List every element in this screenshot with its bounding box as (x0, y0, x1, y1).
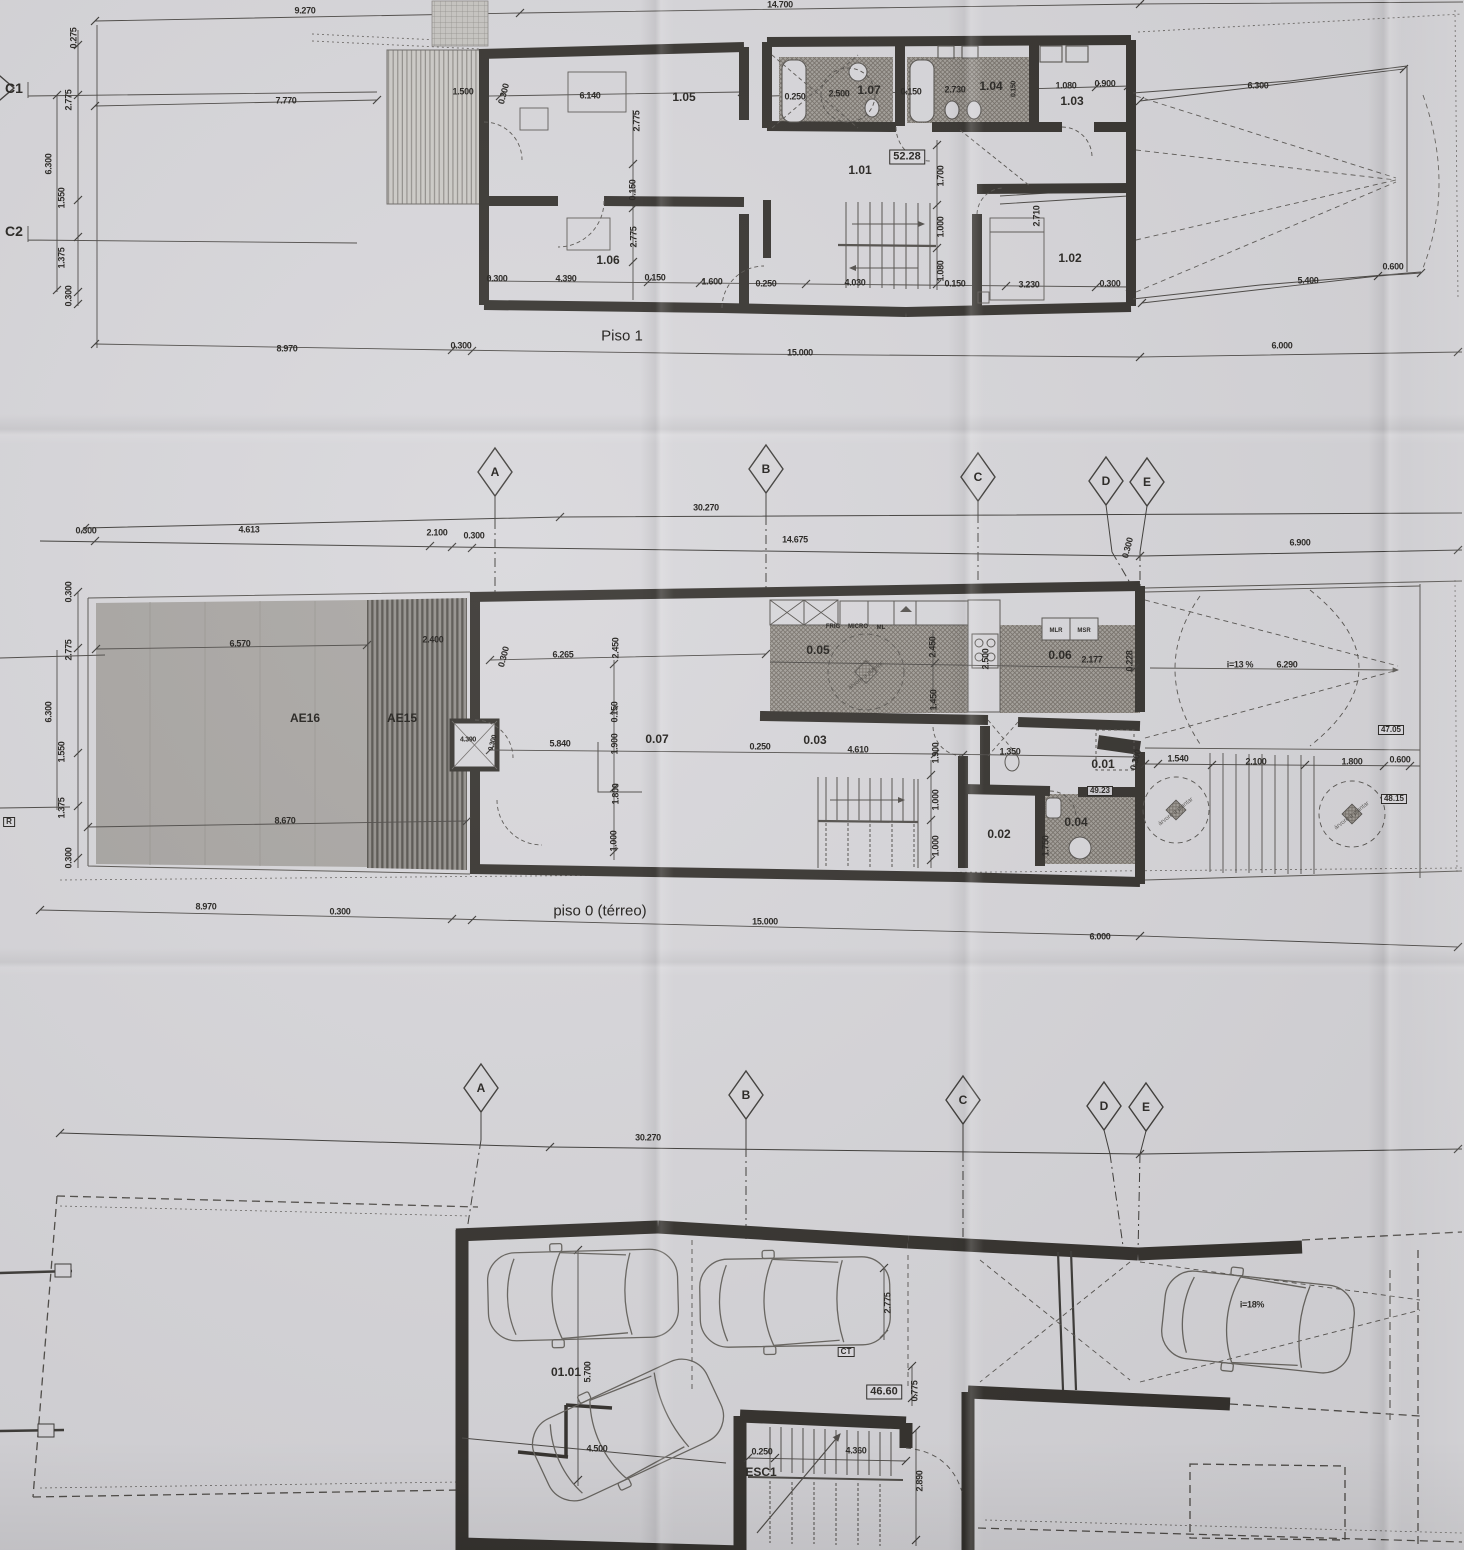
small-badge: CT (838, 1347, 855, 1357)
room-label: 01.01 (551, 1366, 581, 1378)
piso0-title: piso 0 (térreo) (553, 904, 646, 919)
piso1-title: Piso 1 (601, 329, 643, 344)
dimension-label: 4.360 (845, 1447, 866, 1456)
garage-labels: 01.015.7004.5002.775CT46.600.7750.2504.3… (0, 0, 1464, 1550)
dimension-label: 2.890 (916, 1470, 925, 1491)
area-badge: 46.60 (866, 1385, 902, 1400)
dimension-label: 0.250 (751, 1448, 772, 1457)
dimension-label: 2.775 (884, 1292, 893, 1313)
dimension-label: 4.500 (586, 1445, 607, 1454)
dimension-label: 0.775 (911, 1380, 920, 1401)
dimension-label: i=18% (1240, 1301, 1264, 1310)
dimension-label: 5.700 (584, 1361, 593, 1382)
room-label: ESC1 (745, 1466, 776, 1478)
scanned-floor-plan-sheet: 9.27014.7007.770C1C20.2752.7756.3001.550… (0, 0, 1464, 1550)
